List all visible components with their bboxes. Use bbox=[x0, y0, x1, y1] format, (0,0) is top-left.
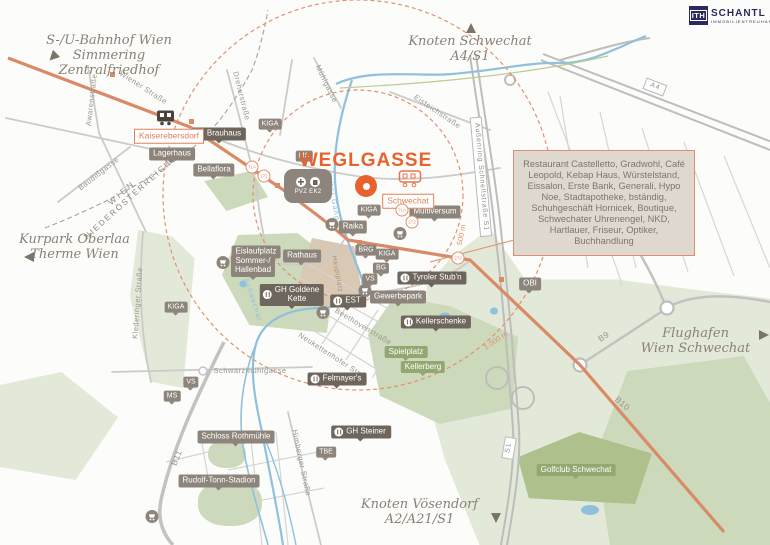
street-schwarzm-hlgasse: Schwarzmühlgasse bbox=[213, 367, 286, 375]
brand-subtitle: IMMOBILIENTREUHAND bbox=[711, 19, 770, 24]
property-location-marker-icon bbox=[355, 175, 377, 197]
pin-bg: BG bbox=[373, 263, 389, 274]
cart-icon bbox=[317, 306, 330, 324]
pin-ms: MS bbox=[164, 391, 181, 402]
arrow-left-icon bbox=[24, 252, 34, 262]
rest-gh-goldene-kette: GH Goldene Kette bbox=[260, 284, 324, 306]
destination-kurpark-oberlaa: Kurpark Oberlaa Therme Wien bbox=[12, 233, 137, 263]
company-logo: ITH SCHANTL IMMOBILIENTREUHAND bbox=[689, 6, 770, 25]
pin-tbe: TBE bbox=[316, 447, 336, 458]
tag-rathaus: Rathaus bbox=[283, 250, 321, 263]
logo-square-icon: ITH bbox=[689, 6, 708, 25]
badge-272: 272 bbox=[406, 216, 419, 229]
cart-icon bbox=[326, 218, 339, 236]
destination-knoten-schwechat: Knoten Schwechat A4/S1 bbox=[392, 35, 548, 65]
street-awarenstra-e: Awarenstraße bbox=[85, 73, 100, 126]
distance-1-000-m: 1.000 m bbox=[482, 330, 509, 352]
destination-flughafen: Flughafen Wien Schwechat bbox=[628, 327, 763, 357]
pin-vs: VS bbox=[183, 377, 198, 388]
arrow-down-icon bbox=[491, 513, 501, 523]
tag-rudolf-tonn-stadion: Rudolf-Tonn-Stadion bbox=[179, 475, 260, 488]
arrow-right-icon bbox=[759, 330, 769, 340]
location-map: KIGAKIGAKIGAKIGAMSMSVSVSBGBRGTBELagerhau… bbox=[0, 0, 770, 545]
glabel-spielplatz: Spielplatz bbox=[385, 346, 428, 358]
rest-gh-steiner: GH Steiner bbox=[331, 426, 391, 439]
pvz-label: PVZ EK2 bbox=[295, 189, 322, 195]
property-title: WEGLGASSE bbox=[300, 150, 433, 172]
roadtext-b10: B10 bbox=[613, 395, 632, 413]
badge-71a: 71A bbox=[246, 161, 259, 174]
street-klederinger-stra-e: Klederinger Straße bbox=[131, 267, 144, 339]
pin-kiga: KIGA bbox=[165, 302, 188, 313]
cart-icon bbox=[217, 256, 230, 274]
tag-gewerbepark: Gewerbepark bbox=[370, 291, 426, 304]
badge-272: 272 bbox=[452, 252, 465, 265]
tag-bellaflora: Bellaflora bbox=[193, 164, 234, 177]
street-baudi-gasse: Baudißgasse bbox=[77, 156, 121, 193]
tag-obi: OBI bbox=[519, 278, 541, 291]
tag-lagerhaus: Lagerhaus bbox=[149, 148, 195, 161]
roadbox-au-enring-schnellstra-e-s1: Außenring Schnellstraße S1 bbox=[470, 117, 492, 238]
distance-500-m: 500 m bbox=[456, 224, 469, 246]
train-dark-icon bbox=[155, 109, 177, 132]
roadtext-b11: B11 bbox=[170, 449, 185, 467]
pin-kiga: KIGA bbox=[259, 119, 282, 130]
roadtext-b9: B9 bbox=[597, 330, 612, 344]
street-himberger-stra-e: Himberger Straße bbox=[290, 429, 312, 497]
pin-kiga: KIGA bbox=[358, 205, 381, 216]
glabel-golfclub-schwechat: Golfclub Schwechat bbox=[537, 464, 616, 476]
roadbox-a4: A4 bbox=[643, 78, 668, 97]
street-eisteichstra-e: Eisteichstraße bbox=[412, 93, 462, 130]
badge-71a: 71A bbox=[396, 204, 409, 217]
pin-vs: VS bbox=[362, 274, 377, 285]
street-m-hlgasse: Mühlgasse bbox=[313, 64, 338, 104]
brown-hauptplatz: Hauptplatz bbox=[330, 255, 344, 293]
obox-schwechat: Schwechat bbox=[382, 194, 434, 209]
glabel-kellerberg: Kellerberg bbox=[401, 361, 445, 373]
amenities-info-box: Restaurant Castelletto, Gradwohl, Café L… bbox=[513, 150, 695, 256]
roadbox-s1: S1 bbox=[501, 436, 516, 460]
tag-sommer-hallenbad: Sommer-/ Hallenbad bbox=[231, 255, 275, 277]
brand-name: SCHANTL bbox=[711, 8, 770, 19]
shopping-bag-icon bbox=[310, 177, 320, 187]
rest-tyroler-stub-n: Tyroler Stub'n bbox=[397, 272, 466, 285]
cart-icon bbox=[394, 227, 407, 245]
tag-raika: Raika bbox=[339, 221, 367, 234]
train-orange-icon bbox=[398, 169, 424, 193]
pharmacy-cross-icon bbox=[296, 177, 306, 187]
cart-icon bbox=[146, 510, 159, 528]
cart-icon bbox=[359, 284, 372, 302]
destination-simmering: S-/U-Bahnhof Wien Simmering Zentralfried… bbox=[20, 34, 198, 78]
pvz-shopping-center: PVZ EK2 bbox=[284, 169, 332, 203]
destination-voesendorf: Knoten Vösendorf A2/A21/S1 bbox=[342, 498, 497, 528]
pin-brg: BRG bbox=[355, 245, 376, 256]
street-beethovenstra-e: Beethovenstraße bbox=[333, 307, 393, 347]
badge-272: 272 bbox=[258, 170, 271, 183]
tag-schloss-rothm-hle: Schloss Rothmühle bbox=[198, 431, 275, 444]
rest-kellerschenke: Kellerschenke bbox=[401, 316, 471, 329]
map-labels-layer: KIGAKIGAKIGAKIGAMSMSVSVSBGBRGTBELagerhau… bbox=[0, 0, 770, 545]
pin-kiga: KIGA bbox=[376, 249, 399, 260]
arrow-up-icon bbox=[466, 23, 476, 33]
street-dreherstra-e: Dreherstraße bbox=[231, 71, 251, 122]
